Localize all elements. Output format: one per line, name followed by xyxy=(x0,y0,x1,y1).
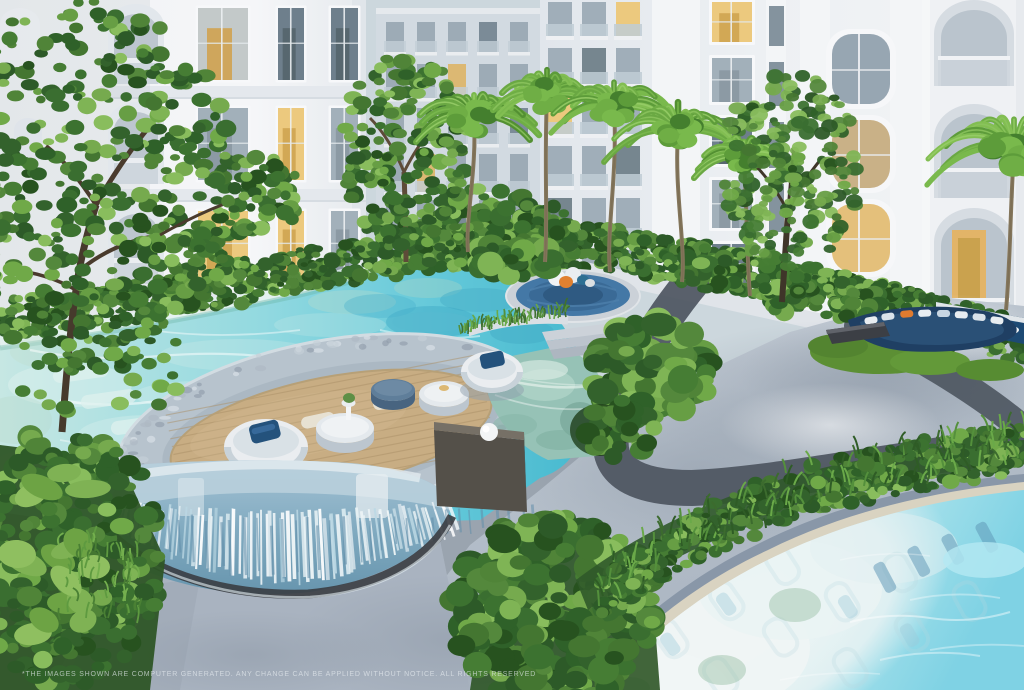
svg-text:*THE IMAGES SHOWN ARE COMPUTER: *THE IMAGES SHOWN ARE COMPUTER GENERATED… xyxy=(22,671,536,678)
